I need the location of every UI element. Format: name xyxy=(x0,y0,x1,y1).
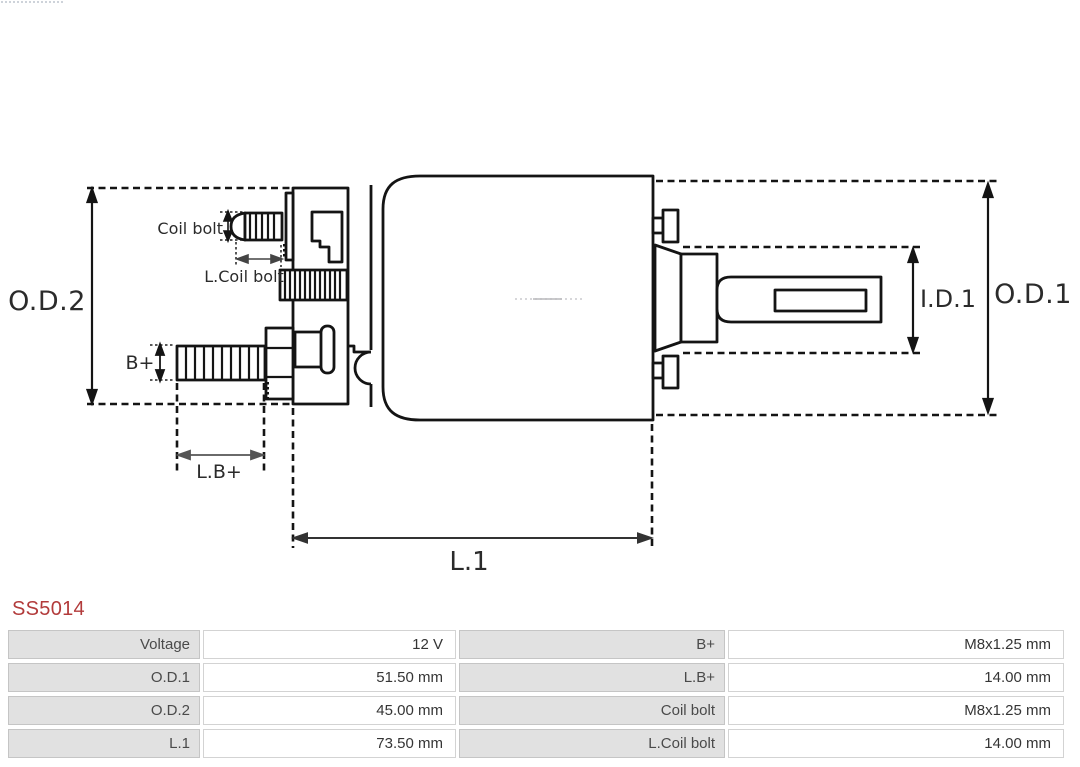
bplus-washer xyxy=(295,332,322,367)
spec-value-od2: 45.00 mm xyxy=(203,696,456,725)
product-code: SS5014 xyxy=(12,598,85,621)
spec-table: Voltage 12 V B+ M8x1.25 mm O.D.1 51.50 m… xyxy=(8,630,1064,758)
coil-bolt-tip xyxy=(231,213,245,240)
spec-label-coil-bolt: Coil bolt xyxy=(459,696,725,725)
spec-value-l1: 73.50 mm xyxy=(203,729,456,758)
spec-value-lcoil-bolt: 14.00 mm xyxy=(728,729,1064,758)
l1-dimension-arrow xyxy=(294,534,651,543)
spec-label-od2: O.D.2 xyxy=(8,696,200,725)
solenoid-technical-drawing: O.D.2 O.D.1 I.D.1 L.1 B+ L.B+ Coil bolt … xyxy=(0,0,1080,590)
bottom-terminal-stem xyxy=(653,363,663,378)
spec-label-lbplus: L.B+ xyxy=(459,663,725,692)
shaft-slot xyxy=(775,290,866,311)
label-lcoil-bolt: L.Coil bolt xyxy=(204,267,284,286)
spec-value-voltage: 12 V xyxy=(203,630,456,659)
spec-row-4: L.1 73.50 mm L.Coil bolt 14.00 mm xyxy=(8,729,1064,758)
spec-value-bplus: M8x1.25 mm xyxy=(728,630,1064,659)
bplus-pin xyxy=(321,326,334,373)
end-collar xyxy=(681,254,717,342)
top-terminal-head xyxy=(663,210,678,242)
spec-row-2: O.D.1 51.50 mm L.B+ 14.00 mm xyxy=(8,663,1064,692)
label-coil-bolt: Coil bolt xyxy=(157,219,223,238)
spec-label-lcoil-bolt: L.Coil bolt xyxy=(459,729,725,758)
label-od2: O.D.2 xyxy=(8,286,86,317)
spec-value-lbplus: 14.00 mm xyxy=(728,663,1064,692)
bplus-dimension-arrow xyxy=(156,344,164,381)
bottom-terminal-head xyxy=(663,356,678,388)
bplus-hex-nut xyxy=(266,328,293,399)
main-cylinder xyxy=(383,176,653,420)
spec-label-bplus: B+ xyxy=(459,630,725,659)
lcoil-bolt-dimension-arrow xyxy=(237,255,282,263)
label-od1: O.D.1 xyxy=(994,279,1072,310)
coil-bolt-tab xyxy=(286,193,293,260)
od2-dimension-arrow xyxy=(88,189,97,403)
product-spec-page: { "title": { "text": "SS5014", "color": … xyxy=(0,0,1080,767)
top-terminal-stem xyxy=(653,218,663,233)
label-l1: L.1 xyxy=(449,547,488,577)
end-flange xyxy=(655,245,681,351)
spec-label-l1: L.1 xyxy=(8,729,200,758)
spec-label-voltage: Voltage xyxy=(8,630,200,659)
bracket-ledge xyxy=(348,346,371,352)
spec-value-coil-bolt: M8x1.25 mm xyxy=(728,696,1064,725)
solenoid-outline xyxy=(177,176,881,420)
label-id1: I.D.1 xyxy=(920,285,976,313)
lbplus-dimension-arrow xyxy=(178,451,263,459)
bracket-notch-arc xyxy=(355,352,371,384)
spec-row-1: Voltage 12 V B+ M8x1.25 mm xyxy=(8,630,1064,659)
spec-row-3: O.D.2 45.00 mm Coil bolt M8x1.25 mm xyxy=(8,696,1064,725)
label-bplus: B+ xyxy=(126,352,155,374)
od1-dimension-arrow xyxy=(984,184,993,412)
id1-dimension-arrow xyxy=(909,249,918,351)
spec-label-od1: O.D.1 xyxy=(8,663,200,692)
label-lbplus: L.B+ xyxy=(196,461,242,483)
spec-value-od1: 51.50 mm xyxy=(203,663,456,692)
